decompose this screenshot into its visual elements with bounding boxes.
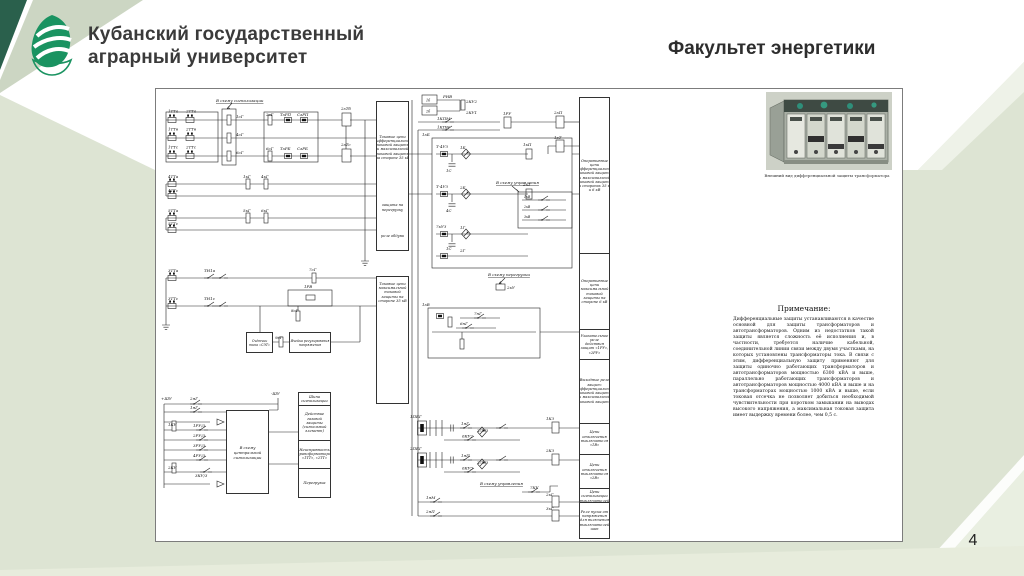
- component-label: 5ТТс: [168, 221, 179, 226]
- terminal-column-section: Указательное реле действия защит «1РУ», …: [580, 329, 609, 359]
- component-label: 4сГ: [235, 132, 244, 137]
- component-label: 2Б: [459, 185, 466, 190]
- component-label: 1Г: [460, 225, 466, 230]
- slide-content-box: 1ТТа2ТТа1ТТв2ТТв1ТТс2ТТсВ схему сигнализ…: [155, 88, 903, 542]
- component-label: 1зВ: [422, 302, 430, 307]
- terminal-column-section: Перегрузка: [299, 468, 330, 497]
- component-label: СзРП: [297, 112, 309, 117]
- terminal-column-section: Шина сигнализации: [299, 393, 330, 405]
- column-label: Оперативные цепи максимальной токовой за…: [581, 279, 609, 304]
- component-label: 1яГ: [190, 405, 198, 410]
- component-label: 3ТТс: [168, 296, 179, 301]
- component-label: ТН1а: [204, 268, 216, 273]
- terminal-column-current-35kv: Токовые цепи дифференциальной токовой за…: [376, 101, 409, 251]
- component-label: -ШУ: [271, 391, 281, 396]
- university-logo-icon: [28, 14, 76, 78]
- component-label: 1кП: [523, 142, 532, 147]
- component-label: 7сГ: [309, 267, 317, 272]
- component-label: В схему управления: [479, 481, 523, 486]
- component-label: 2яГ: [189, 396, 198, 401]
- component-label: 2ТТс: [185, 145, 197, 150]
- component-label: 1сГ: [236, 114, 244, 119]
- component-label: 1РУ: [503, 111, 512, 116]
- terminal-column-section: Реле пуска от напряжения для включения в…: [580, 502, 609, 538]
- column-label: Выходные реле защит: дифференциальной то…: [580, 378, 609, 403]
- component-label: 1С: [446, 168, 452, 173]
- component-label: 1яГ: [461, 421, 469, 426]
- component-label: Т-4УЗ: [436, 144, 448, 149]
- equipment-photo: [766, 92, 892, 170]
- voltage-regulator-box: Ячейка регулирования напряжения: [289, 332, 331, 353]
- component-label: 8сГ: [291, 308, 299, 313]
- circuit-diagram: 1ТТа2ТТа1ТТв2ТТв1ТТс2ТТсВ схему сигнализ…: [160, 92, 725, 542]
- component-label: 1б: [426, 99, 431, 103]
- column-label: Неисправность трансформаторов «1ТТ», «2Т…: [299, 448, 330, 461]
- component-label: 1ТТс: [168, 145, 179, 150]
- component-label: 3кГ: [546, 506, 554, 511]
- component-label: В схему управления: [495, 180, 539, 185]
- component-label: 1КПМ: [437, 116, 451, 121]
- component-label: 7кУЗ: [436, 224, 447, 229]
- component-label: 2ТТв: [185, 127, 197, 132]
- trip-circuit-rows-group: [418, 408, 580, 521]
- faculty-title: Факультет энергетики: [668, 38, 875, 60]
- component-label: 2зТс: [340, 142, 351, 147]
- component-label: 7нГ: [474, 311, 482, 316]
- column-label: Цепи отключения выключателя «1В»: [581, 430, 608, 447]
- component-label: ТзРБ: [280, 146, 291, 151]
- component-label: 1зТ: [554, 135, 562, 140]
- terminal-column-section: Оперативные цепи максимальной токовой за…: [580, 253, 609, 329]
- terminal-column-section: Цепи отключения выключателя «2В»: [580, 454, 609, 488]
- component-label: СзРБ: [297, 146, 308, 151]
- component-label: 2Г: [459, 248, 466, 253]
- component-label: 6сГ: [266, 146, 274, 151]
- page-number: 4: [958, 532, 988, 550]
- component-label: 6сГ: [236, 150, 244, 155]
- component-label: 1Б: [460, 145, 466, 150]
- component-label: 2КУ: [167, 465, 178, 470]
- component-label: 3РУ/3: [193, 443, 205, 448]
- component-label: 2РУ/3: [192, 433, 205, 438]
- component-label: 4кГ: [260, 174, 269, 179]
- component-label: 2КУ1: [465, 110, 477, 115]
- component-label: 1РВ: [304, 284, 312, 289]
- column-label: реле обдува: [381, 234, 404, 238]
- terminal-column-section: реле обдува: [377, 222, 408, 250]
- terminal-column-current-mtz: Токовые цепи максимальной токовой защиты…: [376, 276, 409, 404]
- terminal-column-signalling: Шина сигнализацииДействие газовой защиты…: [298, 392, 331, 498]
- component-label: 2кВ: [523, 205, 531, 209]
- university-name: Кубанский государственный аграрный униве…: [88, 24, 364, 70]
- component-label: 2зТб: [340, 106, 351, 111]
- component-label: 2б: [425, 110, 431, 114]
- column-label: Цепи сигнализации выключателей: [580, 490, 609, 502]
- component-label: 1ТТа: [168, 109, 179, 114]
- component-label: 2зП: [553, 110, 563, 115]
- component-label: 7КУ: [530, 485, 540, 490]
- terminal-column-section: Оперативные цепи дифференциальной токово…: [580, 98, 609, 253]
- column-label: Реле пуска от напряжения для включения в…: [580, 510, 609, 531]
- terminal-column-section: Цепи отключения выключателя «1В»: [580, 423, 609, 455]
- note-body: Дифференциальные защиты устанавливаются …: [733, 317, 874, 418]
- component-label: 1РУ/3: [193, 423, 205, 428]
- component-label: 2сГ: [265, 112, 274, 117]
- component-label: 1кГ: [243, 174, 251, 179]
- component-label: 2ТТа: [185, 109, 197, 114]
- component-label: 1яП: [461, 453, 470, 458]
- component-label: 1ТТв: [168, 127, 179, 132]
- column-label: Токовые цепи максимальной токовой защиты…: [378, 282, 407, 303]
- component-label: В схему сигнализации: [215, 98, 264, 103]
- component-label: 2ЛУЗ: [476, 428, 489, 433]
- component-label: 5ТТа: [168, 208, 179, 213]
- component-label: 3КУ/3: [195, 473, 208, 478]
- component-label: 4С: [445, 208, 452, 213]
- column-label: Перегрузка: [303, 481, 325, 485]
- component-label: Т-4УЗ: [436, 184, 448, 189]
- terminal-column-section: Токовые цепи максимальной токовой защиты…: [377, 277, 408, 403]
- column-label: Указательное реле действия защит «1РУ», …: [581, 334, 608, 355]
- terminal-column-section: Токовые цепи дифференциальной токовой за…: [377, 102, 408, 193]
- component-label: 6КУ2: [462, 434, 474, 439]
- terminal-column-section: защита на перегрузку: [377, 193, 408, 223]
- component-label: 2кУ: [506, 285, 516, 290]
- column-label: Оперативные цепи дифференциальной токово…: [580, 159, 609, 193]
- logo-leaf-shape: [32, 15, 71, 67]
- component-label: 1КПН: [437, 125, 450, 130]
- component-label: 1КУ: [168, 422, 178, 427]
- component-labels-layer: 1ТТа2ТТа1ТТв2ТТв1ТТс2ТТсВ схему сигнализ…: [161, 94, 563, 514]
- component-label: 4РУ/3: [192, 453, 205, 458]
- component-label: 2ЛУЗ: [476, 460, 489, 465]
- note-title: Примечание:: [733, 304, 875, 313]
- component-label: 6кГ: [261, 208, 269, 213]
- terminal-column-section: Неисправность трансформаторов «1ТТ», «2Т…: [299, 440, 330, 467]
- column-label: защита на перегрузку: [378, 203, 407, 211]
- university-name-line1: Кубанский государственный: [88, 24, 364, 47]
- terminal-column-section: Цепи сигнализации выключателей: [580, 488, 609, 502]
- component-label: 6нГ: [460, 321, 468, 326]
- component-label: 4ТТс: [167, 188, 179, 193]
- terminal-column-section: Выходные реле защит: дифференциальной то…: [580, 359, 609, 423]
- column-label: Шина сигнализации: [300, 395, 329, 403]
- presentation-slide: Кубанский государственный аграрный униве…: [0, 0, 1024, 576]
- central-signal-box: В схему центральной сигнализации: [226, 410, 269, 494]
- component-label: 2КУ2: [465, 99, 478, 104]
- column-label: Цепи отключения выключателя «2В»: [581, 463, 608, 480]
- component-label: 1зБ: [422, 132, 430, 137]
- bottom-band: [0, 546, 1024, 576]
- component-label: 1яМ: [426, 495, 436, 500]
- component-label: В схему перегрузки: [487, 272, 530, 277]
- component-label: +ШУ: [161, 396, 173, 401]
- component-label: 6КУ3: [462, 466, 474, 471]
- terminal-column-section: Действие газовой защиты (сигнальный элем…: [299, 405, 330, 440]
- component-label: 1КЗ: [546, 416, 555, 421]
- component-label: РНВ: [442, 94, 452, 99]
- component-label: 1С: [446, 246, 452, 251]
- counter-box: Счётчик типа «СЭТ»: [246, 332, 273, 353]
- column-label: Токовые цепи дифференциальной токовой за…: [377, 135, 408, 160]
- university-name-line2: аграрный университет: [88, 47, 364, 70]
- component-label: ТзРП: [280, 112, 292, 117]
- component-label: 2ПБГ: [409, 446, 422, 451]
- photo-caption: Внешний вид дифференциальной защиты тран…: [744, 173, 910, 178]
- terminal-column-operative: Оперативные цепи дифференциальной токово…: [579, 97, 610, 539]
- component-label: 5кГ: [243, 208, 251, 213]
- component-label: 3ТТа: [168, 268, 179, 273]
- component-label: 1кВ: [524, 195, 531, 199]
- component-label: 2яП: [425, 509, 435, 514]
- component-label: 2кГ: [545, 492, 554, 497]
- column-label: Действие газовой защиты (сигнальный элем…: [300, 412, 329, 433]
- ct-circuits-group: [166, 103, 376, 265]
- component-label: 4ТТа: [167, 174, 179, 179]
- component-label: ТН1с: [204, 296, 216, 301]
- component-label: 1ПБГ: [410, 414, 422, 419]
- component-label: 3кВ: [524, 215, 531, 219]
- component-label: 9сГ: [275, 335, 283, 340]
- component-label: 2КЗ: [545, 448, 555, 453]
